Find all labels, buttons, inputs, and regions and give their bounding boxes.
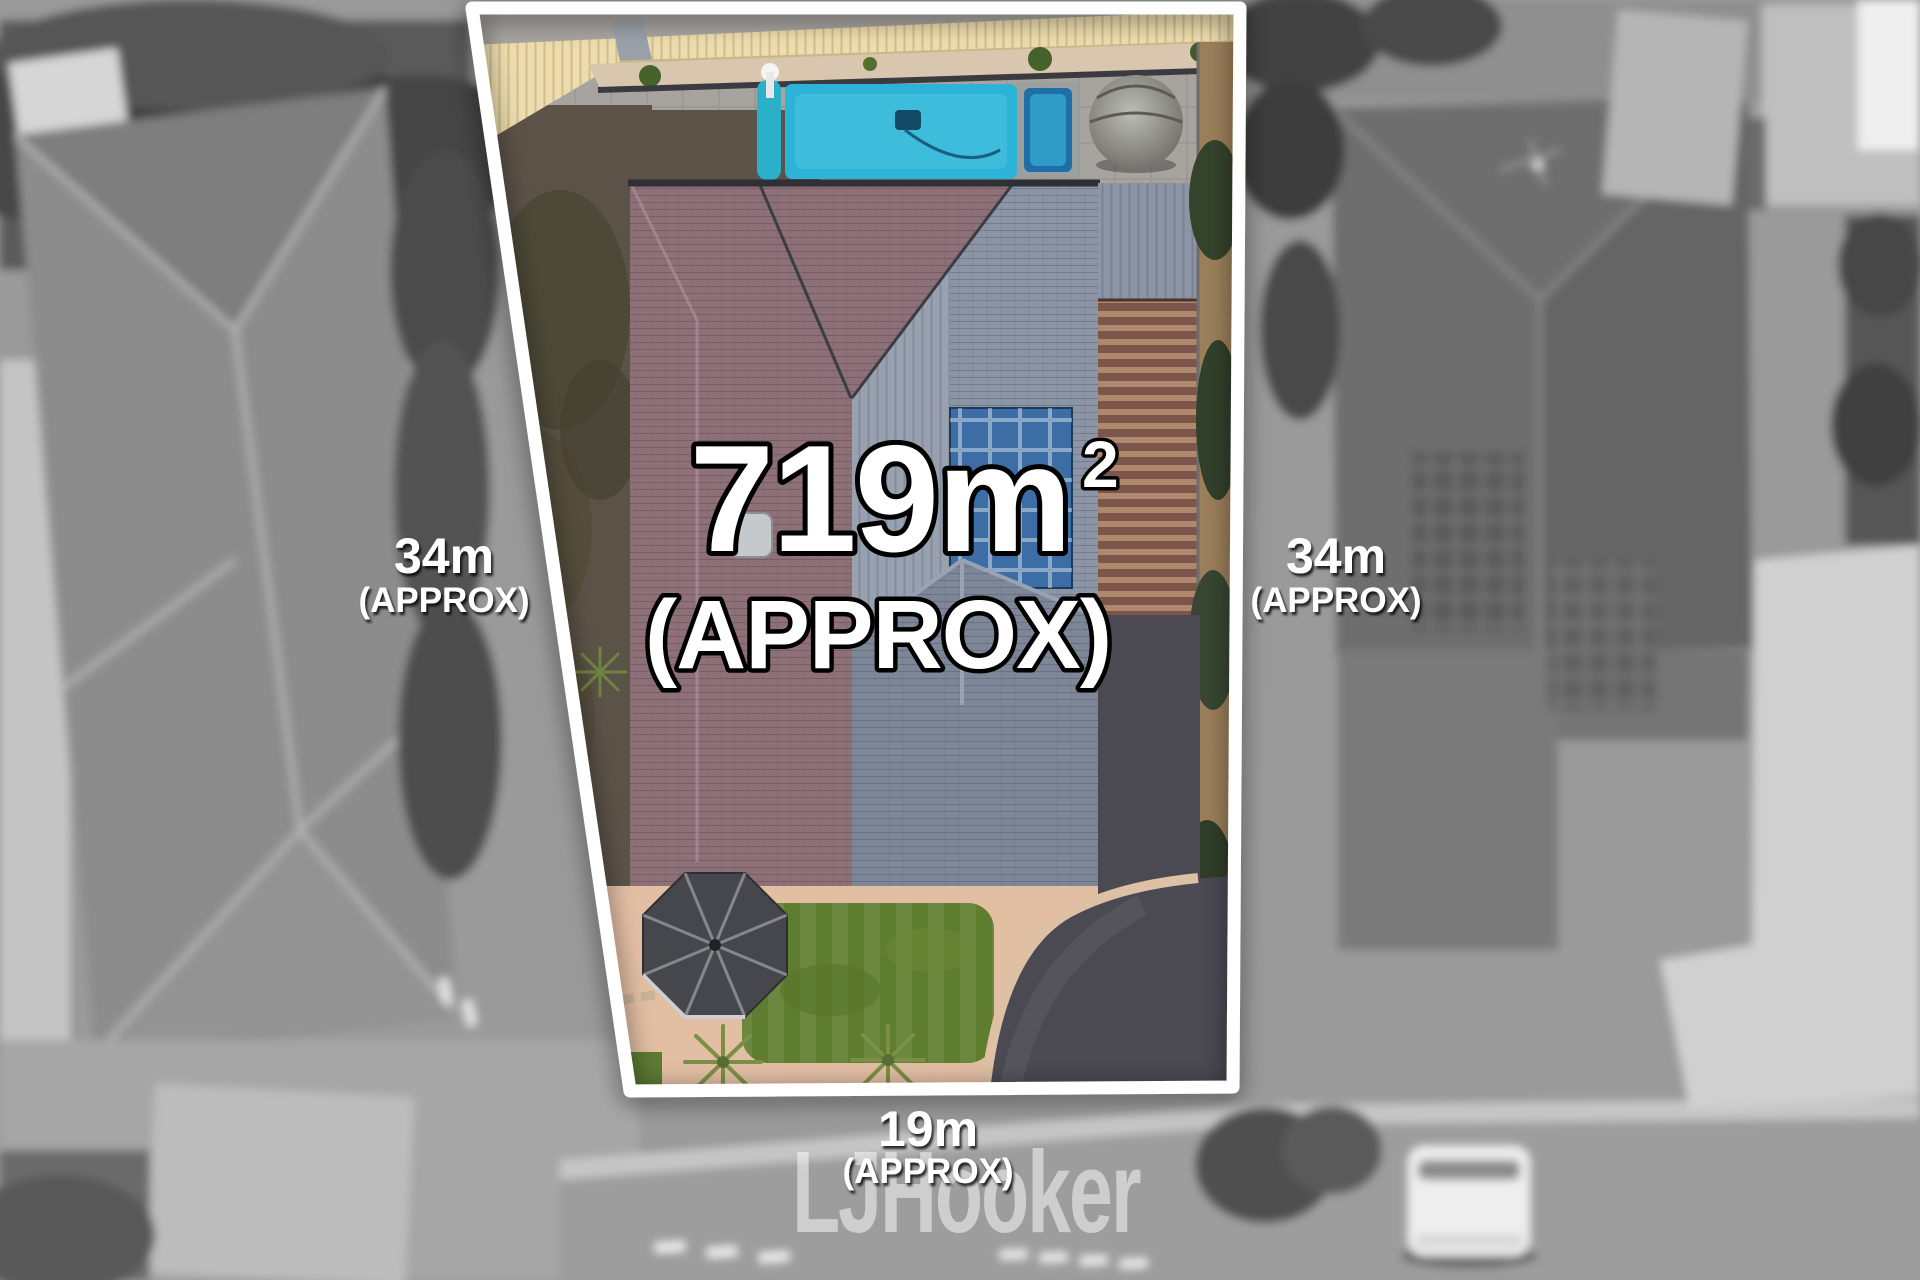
pool-cleaner bbox=[895, 110, 921, 130]
aerial-photo-canvas: LJHooker 719m 2 (APPROX) 34m (APPROX) 34… bbox=[0, 0, 1920, 1280]
front-boundary-length: 19m bbox=[878, 1101, 978, 1157]
pergola bbox=[1098, 183, 1198, 620]
swimming-pool bbox=[785, 84, 1017, 179]
front-boundary-approx: (APPROX) bbox=[842, 1152, 1013, 1191]
gazebo-roof bbox=[643, 873, 787, 1017]
spa bbox=[1017, 82, 1079, 178]
aerial-photo: LJHooker 719m 2 (APPROX) 34m (APPROX) 34… bbox=[0, 0, 1920, 1280]
land-area-superscript: 2 bbox=[1082, 427, 1119, 501]
land-area-label: 719m 2 (APPROX) bbox=[645, 414, 1119, 689]
land-area-approx: (APPROX) bbox=[645, 580, 1111, 689]
left-boundary-approx: (APPROX) bbox=[358, 581, 529, 620]
right-boundary-length: 34m bbox=[1286, 528, 1386, 584]
parked-van bbox=[1401, 1146, 1537, 1268]
right-boundary-approx: (APPROX) bbox=[1250, 581, 1421, 620]
left-boundary-length: 34m bbox=[394, 528, 494, 584]
land-area-value: 719m bbox=[690, 414, 1071, 584]
shed-top-right bbox=[1748, 0, 1920, 210]
tv-antenna bbox=[1532, 159, 1544, 171]
